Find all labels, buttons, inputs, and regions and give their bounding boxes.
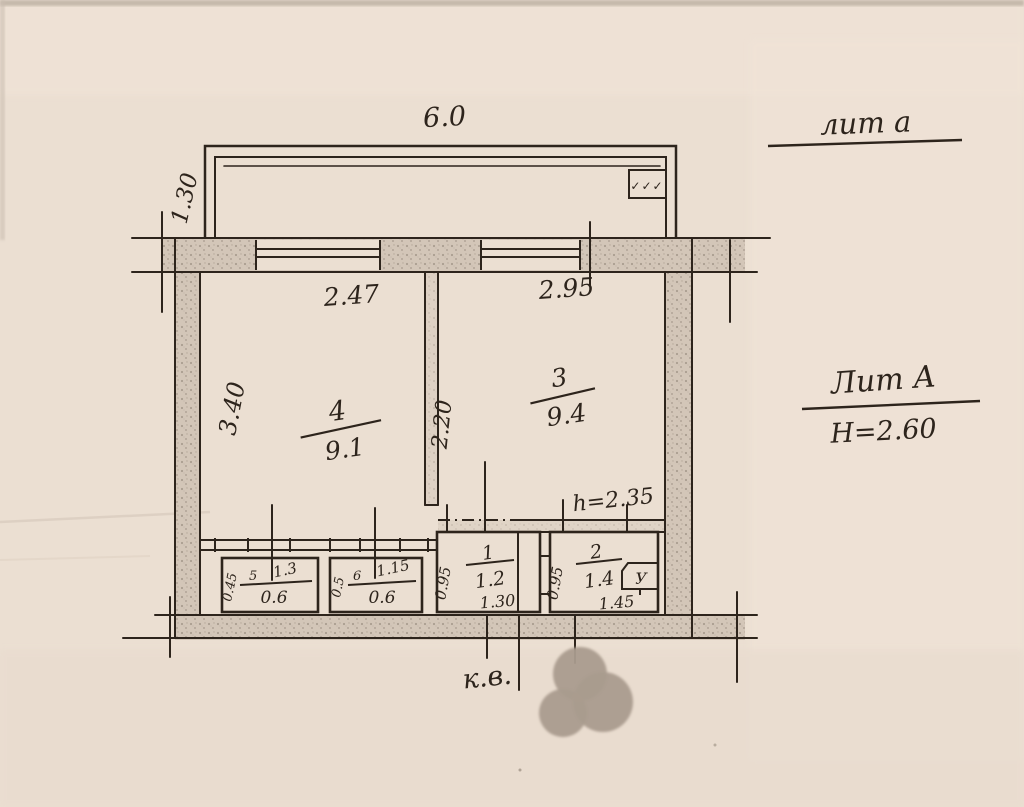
bath2-width-dim: 1.45 bbox=[598, 592, 635, 614]
closet5-area: 0.6 bbox=[260, 588, 287, 608]
hall1-width-dim: 1.30 bbox=[479, 591, 516, 613]
closet6-area: 0.6 bbox=[368, 588, 395, 608]
fixture-mark: У bbox=[635, 569, 648, 588]
floor-plan-scan: ✓✓✓ 6.0 1.30 bbox=[0, 0, 1024, 807]
vent-checkmarks-icon: ✓✓✓ bbox=[630, 179, 663, 193]
scan-speck bbox=[519, 769, 522, 772]
hall1-area: 1.2 bbox=[474, 567, 507, 593]
bath2-area: 1.4 bbox=[583, 567, 616, 593]
building-height-note: H=2.60 bbox=[829, 413, 938, 450]
room4-area: 9.1 bbox=[323, 432, 366, 466]
liter-note-small: лит а bbox=[820, 104, 912, 141]
balcony-width-dim: 6.0 bbox=[422, 101, 467, 134]
closet5-number: 5 bbox=[249, 569, 257, 584]
liter-label-main: Лит А bbox=[828, 359, 937, 401]
room3-area: 9.4 bbox=[545, 398, 588, 432]
floor-plan-drawing: ✓✓✓ 6.0 1.30 bbox=[0, 0, 1024, 807]
partition-dim: 2.20 bbox=[427, 399, 457, 451]
apartment-note: к.в. bbox=[461, 660, 513, 696]
scan-speck bbox=[714, 744, 717, 747]
room4-width-dim: 2.47 bbox=[322, 279, 381, 312]
closet6-number: 6 bbox=[353, 569, 361, 584]
room3-width-dim: 2.95 bbox=[537, 272, 596, 305]
